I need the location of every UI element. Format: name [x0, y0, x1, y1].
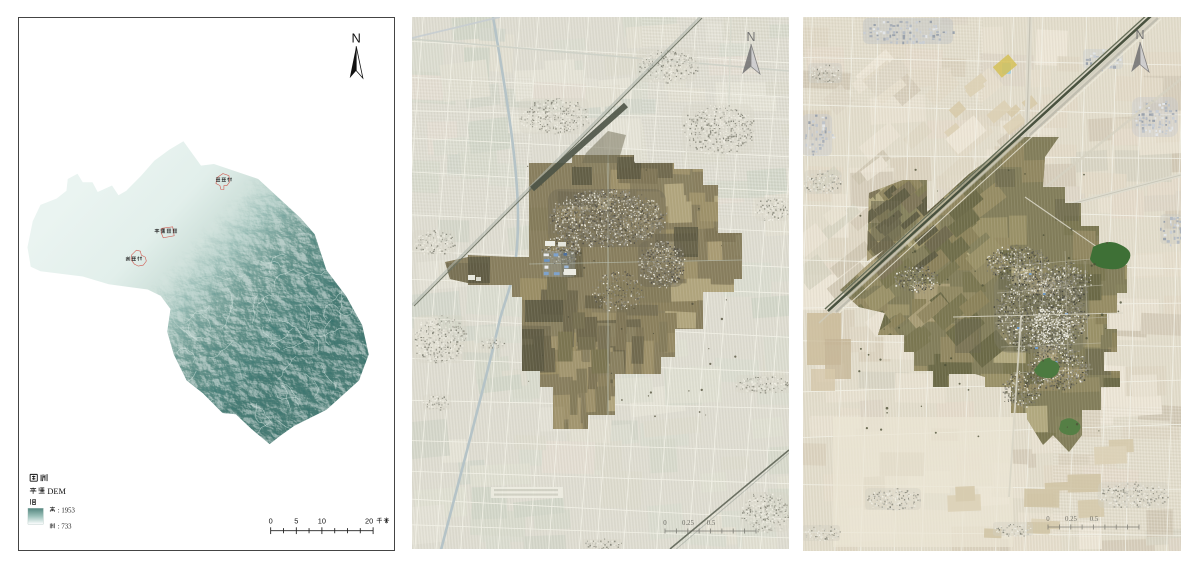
svg-text:N: N: [352, 30, 361, 45]
svg-text:0.25: 0.25: [682, 520, 694, 527]
svg-text:N: N: [746, 30, 755, 44]
svg-text:5: 5: [294, 517, 298, 526]
svg-text:0: 0: [663, 520, 667, 527]
svg-text:0.5: 0.5: [707, 520, 716, 527]
svg-text:N: N: [1135, 28, 1144, 42]
svg-text:0: 0: [269, 517, 273, 526]
svg-text:10: 10: [318, 517, 326, 526]
svg-text:: 1953: : 1953: [58, 507, 76, 514]
svg-text:0.25: 0.25: [1065, 516, 1077, 523]
svg-text:20: 20: [365, 517, 373, 526]
svg-text:0: 0: [1046, 516, 1050, 523]
svg-text:0.5: 0.5: [1090, 516, 1099, 523]
svg-text:: 733: : 733: [58, 524, 72, 531]
svg-text:DEM: DEM: [47, 487, 66, 496]
